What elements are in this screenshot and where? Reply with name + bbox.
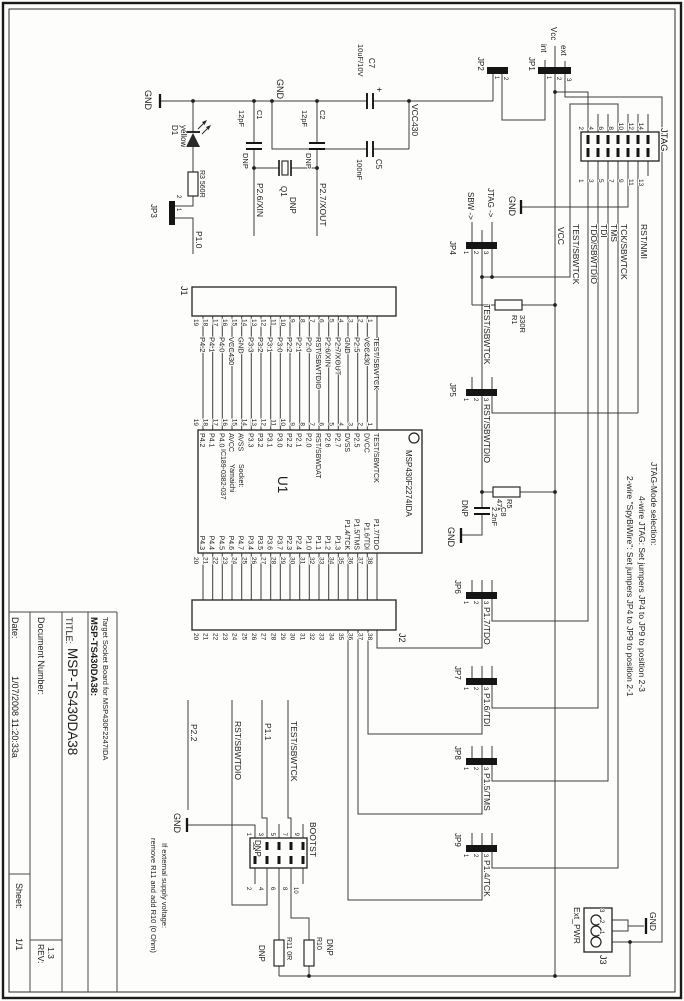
c5-ref: C5: [374, 159, 383, 170]
j1-net: P4.2: [198, 337, 207, 352]
net-tms: TMS: [609, 224, 619, 242]
j1-pin-num: 16: [221, 319, 228, 327]
bootst-pin-num: 3: [257, 833, 263, 837]
net-p1-4-tck: P1.4/TCK: [482, 860, 492, 897]
u1-pin-num: 35: [337, 557, 344, 565]
jtag-pin-num: 7: [607, 179, 614, 183]
j1-net: P2.0: [304, 337, 313, 352]
jp7-pin-num: 3: [482, 687, 488, 691]
connector-j3: [584, 908, 612, 952]
bootst-pin-num: 6: [269, 887, 275, 891]
tb-date-value: 1/07/2008 11:20:33a: [10, 676, 20, 758]
connector-j2: [192, 600, 396, 630]
u1-pin-num: 14: [240, 419, 247, 427]
u1-pin-num: 10: [279, 419, 286, 427]
j1-net: P4.1: [208, 337, 217, 352]
u1-pin-name: P2.2: [285, 433, 292, 448]
r11-label: R11 0R: [285, 937, 292, 960]
u1-pin-name: P1.4/TCK: [343, 520, 350, 551]
j1-pin-num: 4: [337, 319, 344, 323]
u1-pin-name: P3.1: [266, 433, 273, 448]
c1-ref: C1: [255, 110, 264, 120]
q1-ref: Q1: [279, 186, 288, 197]
jp7-pin-num: 1: [462, 687, 468, 691]
j2-pin-num: 30: [289, 633, 296, 641]
net-rst-nmi: RST/NMI: [639, 224, 649, 259]
u1-part: MSP430F2274IDA: [404, 450, 413, 517]
j1-pin-num: 12: [260, 319, 267, 327]
jp4-pin-num: 1: [462, 251, 468, 255]
bootst-pin-num: 2: [245, 887, 251, 891]
c7-plus: +: [374, 87, 384, 92]
j1-net: P3.3: [246, 337, 255, 352]
jp8-pin-num: 3: [482, 767, 488, 771]
r11-dnp: DNP: [257, 945, 266, 962]
r1-value: 330R: [518, 315, 527, 334]
jtag-pin-num: 13: [637, 179, 644, 187]
u1-pin-num: 8: [298, 422, 305, 426]
bootst-pin-num: 7: [281, 833, 287, 837]
j1-pin-num: 13: [250, 319, 257, 327]
tb-title-label: TITLE:: [64, 617, 74, 644]
u1-pin-name: P1.7/TDO: [372, 519, 379, 551]
jtag-pin-num: 9: [617, 179, 624, 183]
c1-value: 12pF: [237, 110, 246, 128]
u1-pin-num: 5: [327, 422, 334, 426]
jp1-ref: JP1: [527, 57, 536, 71]
j1-net: P4.0: [217, 337, 226, 352]
u1-pin-name: P2.1: [295, 433, 302, 448]
u1-pin-num: 16: [221, 419, 228, 427]
u1-pin-name: P2.4: [295, 536, 302, 551]
u1-pin-num: 29: [279, 557, 286, 565]
u1-pin-name: P4.1: [208, 433, 215, 448]
jp8-pin-num: 2: [472, 767, 478, 771]
bootst-ref: BOOTST: [308, 822, 318, 857]
crystal-q1: [279, 160, 291, 176]
c8-dnp: DNP: [460, 500, 469, 517]
resistor-r10: [304, 940, 314, 966]
u1-pin-num: 37: [356, 557, 363, 565]
u1-socket-l1: Socket:: [237, 464, 244, 487]
j1-pin-num: 7: [308, 319, 315, 323]
u1-pin-num: 21: [202, 557, 209, 565]
net-test-sbwtck: TEST/SBWTCK: [571, 224, 581, 285]
u1-pin-num: 4: [337, 422, 344, 426]
resistor-r1: [495, 300, 522, 310]
u1-pin-num: 32: [308, 557, 315, 565]
jtag-ref: JTAG: [658, 128, 669, 152]
u1-pin-num: 24: [231, 557, 238, 565]
c2-ref: C2: [318, 110, 327, 120]
r1-ref: R1: [510, 315, 519, 325]
u1-ref: U1: [275, 476, 290, 493]
jp3-pin-num: 1: [175, 208, 181, 212]
tb-date-label: Date:: [10, 617, 20, 639]
tb-product-desc: Target Socket Board for MSP430F2247IDA: [101, 617, 110, 760]
u1-pin-num: 1: [366, 422, 373, 426]
j1-pin-num: 17: [211, 319, 218, 327]
j1-pin-num: 9: [289, 319, 296, 323]
jp5-pin-num: 3: [482, 398, 488, 402]
u1-pin-num: 6: [318, 422, 325, 426]
u1-pin-name: P3.3: [246, 433, 253, 448]
u1-pin-num: 9: [289, 422, 296, 426]
jtag-pin-num: 14: [637, 123, 644, 131]
bootst-pin-num: 10: [292, 887, 298, 894]
j1-net: P2.7/XOUT: [333, 337, 342, 376]
j2-pin-num: 35: [337, 633, 344, 641]
c7-ref: C7: [367, 58, 376, 69]
net-p1-6-tdi: P1.6/TDI: [482, 693, 492, 727]
u1-pin-name: P4.3: [198, 536, 205, 551]
j1-net: P2.1: [295, 337, 304, 352]
jp4-pin-num: 3: [482, 251, 488, 255]
title-block: [9, 612, 117, 992]
tb-doc-label: Document Number:: [36, 617, 46, 695]
jtag-mode-line1: JTAG-Mode selection:: [649, 462, 659, 545]
j1-pin-num: 10: [279, 319, 286, 327]
jp1-ext: ext: [559, 45, 568, 56]
jtag-pin-num: 2: [577, 126, 584, 130]
jp1-vcc: Vcc: [549, 27, 558, 40]
jp5-ref: JP5: [448, 383, 457, 397]
u1-pin-num: 38: [366, 557, 373, 565]
d1-ref: D1: [170, 125, 179, 136]
r10-dnp: DNP: [325, 939, 334, 956]
j2-pin-num: 29: [279, 633, 286, 641]
j1-pin-num: 3: [347, 319, 354, 323]
j1-pin-num: 2: [356, 319, 363, 323]
u1-pin-name: P1.5/TMS: [353, 519, 360, 550]
jp6-pin-num: 3: [482, 601, 488, 605]
u1-pin-num: 27: [260, 557, 267, 565]
net-tdo-sbwtdio: TDO/SBWTDIO: [589, 224, 599, 284]
q1-dnp: DNP: [288, 197, 297, 214]
jtag-pin-num: 11: [627, 179, 634, 186]
u1-pin-num: 22: [211, 557, 218, 565]
u1-pin-name: P3.2: [256, 433, 263, 448]
u1-pin-name: P2.7: [333, 433, 340, 448]
net-tdi: TDI: [599, 224, 609, 238]
u1-pin-name: P4.6: [227, 536, 234, 551]
jp6-pin-num: 2: [472, 601, 478, 605]
j2-pin-num: 38: [366, 633, 373, 641]
tb-sheet-value: 1/1: [14, 938, 24, 951]
u1-pin-num: 34: [327, 557, 334, 565]
net-test-sbwtck3: TEST/SBWTCK: [289, 721, 299, 782]
u1-pin-num: 13: [250, 419, 257, 427]
j1-pin-num: 14: [240, 319, 247, 327]
u1-pin-num: 15: [231, 419, 238, 427]
gnd-rail-label: GND: [275, 79, 285, 100]
r10-ref: R10: [315, 937, 322, 950]
u1-pin-name: P3.0: [275, 433, 282, 448]
u1-socket-l3: IC189-0382-037: [219, 449, 226, 500]
net-vcc430: VCC430: [410, 104, 420, 136]
c8-ref: C8: [499, 507, 508, 517]
jp4-ref: JP4: [448, 241, 457, 255]
u1-pin-name: P3.4: [246, 536, 253, 551]
d1-value: yellow: [179, 125, 188, 147]
u1-pin-name: P4.0: [217, 433, 224, 448]
u1-pin-name: AVSS: [237, 433, 244, 451]
j1-net: P2.5: [353, 337, 362, 352]
u1-pin-name: P2.0: [304, 433, 311, 448]
j2-pin-num: 26: [250, 633, 257, 641]
j2-pin-num: 23: [221, 633, 228, 641]
net-test-sbwtck2: TEST/SBWTCK: [482, 304, 492, 365]
jtag-pin-num: 10: [617, 123, 624, 131]
u1-pin-name: P4.4: [208, 536, 215, 551]
u1-pin-name: P2.5: [353, 433, 360, 448]
jtag-pin-num: 3: [587, 179, 594, 183]
j1-pin-num: 6: [318, 319, 325, 323]
u1-pin-num: 26: [250, 557, 257, 565]
net-tck-sbwtck: TCK/SBWTCK: [619, 224, 629, 280]
j1-ref: J1: [179, 286, 189, 296]
j2-pin-num: 36: [347, 633, 354, 641]
u1-pin-num: 23: [221, 557, 228, 565]
j1-net: P3.0: [275, 337, 284, 352]
u1-socket-l2: Yamaichi: [228, 464, 235, 493]
jp8-ref: JP8: [453, 746, 462, 760]
j3-extpwr: Ext_PWR: [572, 907, 582, 944]
jp9-ref: JP9: [453, 833, 462, 847]
j1-net: P3.2: [256, 337, 265, 352]
j1-net: GND: [237, 337, 246, 354]
u1-pin-name: P4.7: [237, 536, 244, 551]
jp8-pin-num: 1: [462, 767, 468, 771]
u1-pin-name: TEST/SBWTCK: [372, 433, 379, 483]
jp1-pin-num: 3: [565, 78, 571, 82]
net-p1-5-tms: P1.5/TMS: [482, 773, 492, 811]
j2-pin-num: 28: [269, 633, 276, 641]
bootst-dnp: DNP: [253, 840, 262, 857]
connector-jtag: [581, 132, 659, 161]
j1-pin-num: 18: [202, 319, 209, 327]
c2-dnp: DNP: [304, 153, 313, 169]
u1-pin-name: P1.3: [333, 536, 340, 551]
jp4-pin-num: 2: [472, 251, 478, 255]
c7-value: 10uF/10V: [356, 44, 365, 77]
gnd-label: GND: [143, 90, 153, 111]
jtag-pin-num: 4: [587, 126, 594, 130]
u1-pin-num: 31: [298, 557, 305, 565]
tb-product-name: MSP-TS430DA38:: [88, 617, 99, 696]
u1-pin-name: P4.2: [198, 433, 205, 448]
net-p2-2: P2.2: [189, 724, 199, 742]
tb-title-value: MSP-TS430DA38: [65, 648, 80, 755]
u1-pin-name: P1.0: [304, 536, 311, 551]
u1-pin-name: P3.5: [256, 536, 263, 551]
c2-value: 12pF: [300, 110, 309, 128]
jp2-ref: JP2: [476, 57, 485, 71]
u1-pin-num: 18: [202, 419, 209, 427]
jp5-pin-num: 2: [472, 398, 478, 402]
net-p1-1: P1.1: [263, 723, 273, 741]
j1-net: P2.2: [285, 337, 294, 352]
j1-pin-num: 11: [269, 319, 276, 326]
u1-pin-name: AVCC: [227, 433, 234, 452]
jp6-ref: JP6: [453, 580, 462, 594]
gnd-label4: GND: [172, 813, 182, 834]
jtag-pin-num: 5: [597, 179, 604, 183]
resistor-r5: [493, 487, 520, 497]
net-p2-7-xout: P2.7/XOUT: [318, 183, 328, 226]
u1-pin-num: 28: [269, 557, 276, 565]
jp9-pin-num: 3: [482, 854, 488, 858]
u1-pin-name: P1.2: [324, 536, 331, 551]
u1-pin-num: 3: [347, 422, 354, 426]
net-vcc: VCC: [556, 227, 566, 245]
u1-pin-num: 20: [192, 557, 199, 565]
j1-net: TEST/SBWTCK: [372, 337, 381, 390]
jtag-mode-line2: 4-wire JTAG: Set jumpers JP4 to JP9 to p…: [637, 496, 647, 692]
u1-pin-num: 11: [269, 419, 276, 426]
j2-pin-num: 22: [211, 633, 218, 641]
jp2-pin-num: 1: [493, 76, 499, 80]
u1-pin-name: P3.7: [275, 536, 282, 551]
r3-label: R3 560R: [198, 170, 205, 198]
jtag-mode-line3: 2-wire "SpyBiWire": Set jumpers JP4 to J…: [625, 476, 635, 697]
jp3-ref: JP3: [149, 204, 158, 218]
c1-dnp: DNP: [241, 153, 250, 169]
jp1-pin-num: 1: [545, 76, 551, 80]
u1-pin-num: 36: [347, 557, 354, 565]
c8-value: 2.2nF: [490, 507, 499, 527]
u1-pin-name: P3.6: [266, 536, 273, 551]
j2-pin-num: 34: [327, 633, 334, 641]
j2-pin-num: 21: [202, 633, 209, 641]
jp9-pin-num: 1: [462, 854, 468, 858]
u1-pin-name: DVCC: [362, 433, 369, 453]
j1-net: VCC430: [362, 337, 371, 365]
u1-pin-name: P2.3: [285, 536, 292, 551]
u1-pin-name: RST/SBWDAT: [314, 433, 321, 479]
jp1-pin-num: 2: [555, 77, 561, 81]
net-p1-0: P1.0: [194, 231, 204, 249]
j1-pin-num: 8: [298, 319, 305, 323]
j2-pin-num: 31: [298, 633, 305, 641]
u1-pin-name: P1.1: [314, 536, 321, 551]
u1-pin-num: 17: [211, 419, 218, 427]
tb-sheet-label: Sheet:: [14, 883, 24, 909]
u1-pin-num: 30: [289, 557, 296, 565]
jtag-pin-num: 6: [597, 126, 604, 130]
connector-j1: [192, 287, 396, 316]
gnd-label5: GND: [648, 912, 658, 931]
tb-rev-value: 1.3: [46, 947, 56, 959]
supply-note-l2: remove R11 and add R10 (0 Ohm): [149, 838, 158, 953]
j2-pin-num: 20: [192, 633, 199, 641]
jp5-pin-num: 1: [462, 398, 468, 402]
jp4-sbw: SBW ->: [466, 192, 475, 220]
j2-pin-num: 33: [318, 633, 325, 641]
jp1-int: int: [539, 44, 548, 53]
schematic-sheet: MSP-TS430DA38:Target Socket Board for MS…: [0, 0, 684, 1001]
j2-pin-num: 27: [260, 633, 267, 641]
c5-value: 100nF: [355, 159, 364, 181]
jp4-jtag: JTAG ->: [486, 188, 495, 218]
net-rst-sbwtdio3: RST/SBWTDIO: [233, 721, 243, 780]
jtag-pin-num: 12: [627, 123, 634, 131]
j1-net: RST/SBWTDIO: [314, 337, 323, 389]
j1-net: VCC430: [227, 337, 236, 365]
jp9-pin-num: 2: [472, 854, 478, 858]
jtag-pin-num: 8: [607, 126, 614, 130]
j2-pin-num: 25: [240, 633, 247, 641]
led-d1: [186, 120, 211, 147]
jp6-pin-num: 1: [462, 601, 468, 605]
jp2-pin-num: 2: [502, 77, 508, 81]
u1-pin-name: DVSS: [343, 433, 350, 452]
u1-pin-name: P2.6: [324, 433, 331, 448]
net-p2-6-xin: P2.6/XIN: [255, 183, 265, 217]
u1-pin-num: 12: [260, 419, 267, 427]
bootst-pin-num: 9: [293, 833, 299, 837]
u1-pin-num: 19: [192, 419, 199, 427]
bootst-pin-num: 5: [269, 833, 275, 837]
gnd-label3: GND: [446, 527, 456, 548]
j2-pin-num: 24: [231, 633, 238, 641]
j1-net: P2.6/XIN: [324, 337, 333, 367]
u1-pin-num: 2: [356, 422, 363, 426]
j1-pin-num: 15: [231, 319, 238, 327]
j2-pin-num: 37: [356, 633, 363, 641]
jp7-ref: JP7: [453, 666, 462, 680]
bootst-pin-num: 1: [245, 833, 251, 837]
jp7-pin-num: 2: [472, 687, 478, 691]
supply-note-l1: If external supply voltage:: [160, 843, 169, 928]
j2-pin-num: 32: [308, 633, 315, 641]
bootst-pin-num: 8: [281, 887, 287, 891]
u1-pin-num: 25: [240, 557, 247, 565]
jtag-pin-num: 1: [577, 179, 584, 183]
j1-net: GND: [343, 337, 352, 354]
j3-ref: J3: [598, 955, 608, 965]
resistor-r11: [274, 940, 284, 966]
net-p1-7-tdo: P1.7/TDO: [482, 607, 492, 645]
schematic-svg: MSP-TS430DA38:Target Socket Board for MS…: [0, 0, 684, 1001]
resistor-r3: [188, 172, 198, 196]
j2-ref: J2: [397, 633, 407, 643]
j1-pin-num: 1: [366, 319, 373, 323]
u1-pin-num: 7: [308, 422, 315, 426]
jp3-pin-num: 2: [175, 195, 181, 199]
tb-rev-label: REV:: [36, 944, 46, 964]
u1-pin-num: 33: [318, 557, 325, 565]
j1-net: P3.1: [266, 337, 275, 352]
j1-pin-num: 5: [327, 319, 334, 323]
net-rst-sbwtdio2: RST/SBWTDIO: [482, 404, 492, 463]
gnd-label2: GND: [507, 196, 517, 217]
u1-pin-name: P1.6/TDI: [362, 522, 369, 550]
j1-pin-num: 19: [192, 319, 199, 327]
bootst-pin-num: 4: [257, 887, 263, 891]
u1-pin-name: P4.5: [217, 536, 224, 551]
